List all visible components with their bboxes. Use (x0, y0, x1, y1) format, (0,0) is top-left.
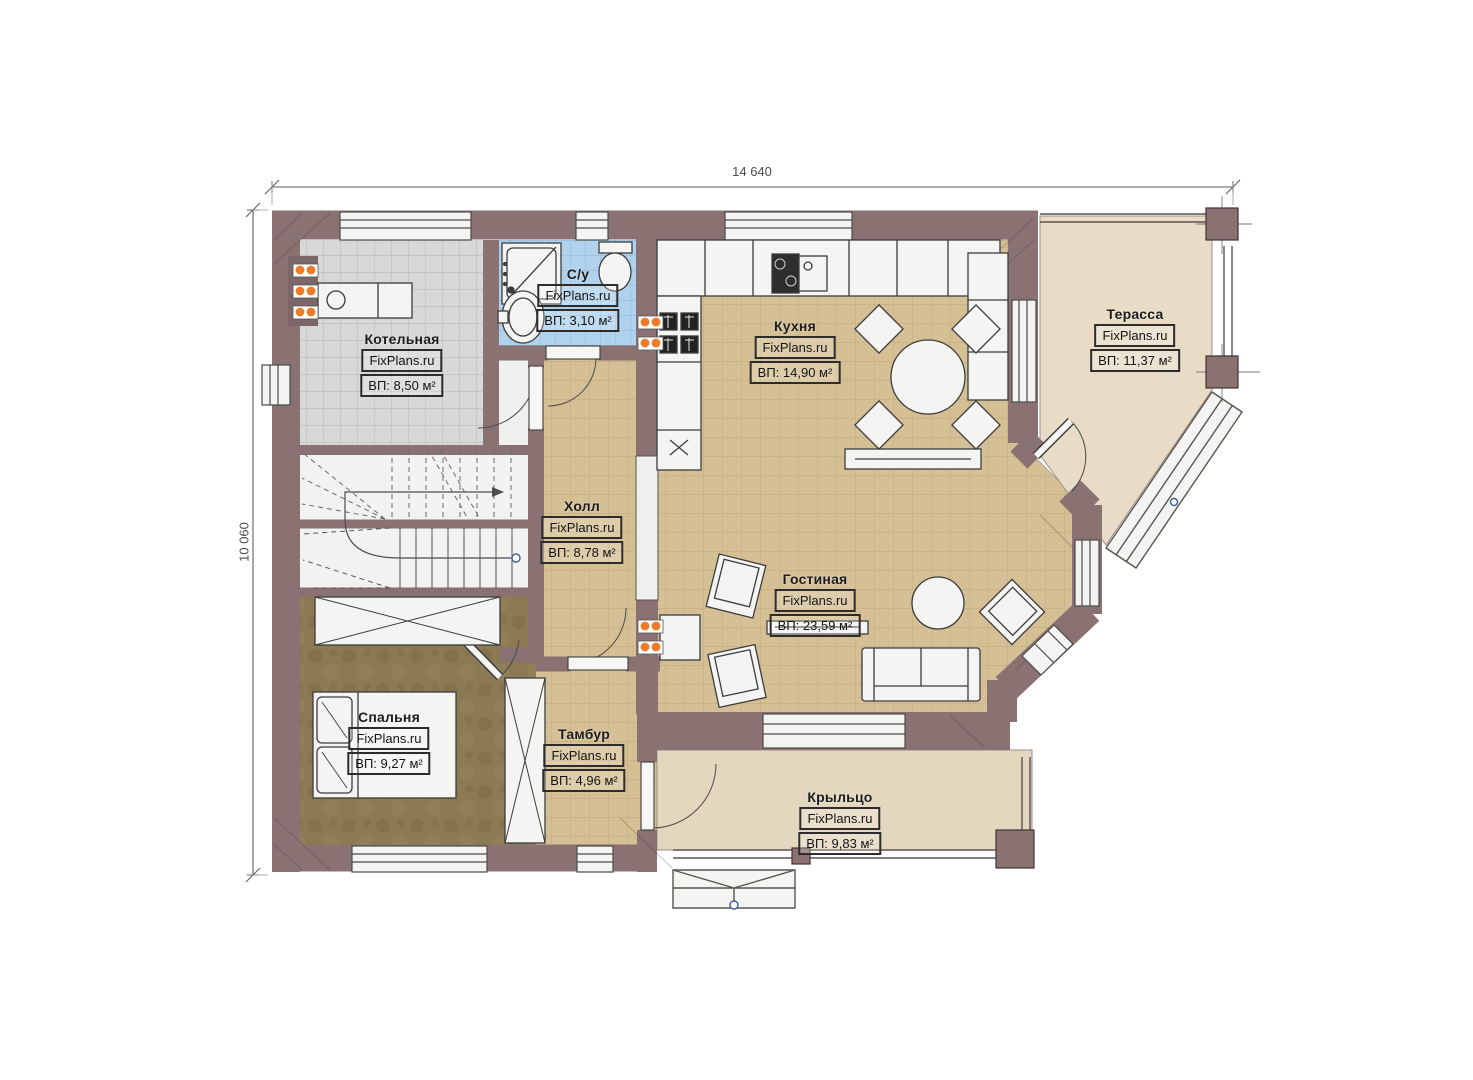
room-name: Крыльцо (798, 789, 881, 805)
room-brand: FixPlans.ru (348, 727, 429, 750)
kitchen-counter-left (657, 296, 701, 470)
room-name: Спальня (347, 709, 430, 725)
room-name: Тамбур (542, 726, 625, 742)
window-tambour-bottom (577, 846, 613, 872)
room-label-tambour: Тамбур FixPlans.ru ВП: 4,96 м² (542, 726, 625, 792)
window-bay-right (1075, 540, 1099, 606)
understairs-storage (315, 597, 500, 645)
room-label-kitchen: Кухня FixPlans.ru ВП: 14,90 м² (750, 318, 841, 384)
terrace-pillar (1206, 356, 1238, 388)
room-brand: FixPlans.ru (774, 589, 855, 612)
room-brand: FixPlans.ru (799, 807, 880, 830)
room-area: ВП: 9,83 м² (798, 832, 881, 855)
radiator-icon (293, 264, 318, 319)
room-area: ВП: 4,96 м² (542, 769, 625, 792)
room-brand: FixPlans.ru (1094, 324, 1175, 347)
room-brand: FixPlans.ru (361, 349, 442, 372)
room-label-living: Гостиная FixPlans.ru ВП: 23,59 м² (770, 571, 861, 637)
floor-plan-drawing (0, 0, 1473, 1080)
room-label-boiler: Котельная FixPlans.ru ВП: 8,50 м² (360, 331, 443, 397)
window-boiler-left (262, 365, 290, 405)
window-kitchen-right (1012, 300, 1036, 402)
room-area: ВП: 23,59 м² (770, 614, 861, 637)
floor-plan-page: 14 640 10 060 Котельная FixPlans.ru ВП: … (0, 0, 1473, 1080)
room-label-porch: Крыльцо FixPlans.ru ВП: 9,83 м² (798, 789, 881, 855)
coffee-table (912, 577, 964, 629)
sofa (862, 648, 980, 701)
wardrobe (505, 678, 545, 843)
kitchen-counter-top (657, 240, 1000, 296)
boiler-unit (318, 283, 412, 318)
room-name: Кухня (750, 318, 841, 334)
room-brand: FixPlans.ru (543, 744, 624, 767)
window-bedroom-bottom (352, 846, 487, 872)
room-area: ВП: 8,50 м² (360, 374, 443, 397)
opening-hall-living (636, 456, 658, 600)
room-area: ВП: 14,90 м² (750, 361, 841, 384)
room-area: ВП: 11,37 м² (1090, 349, 1180, 372)
room-area: ВП: 3,10 м² (536, 309, 619, 332)
room-name: С/у (536, 266, 619, 282)
room-label-bedroom: Спальня FixPlans.ru ВП: 9,27 м² (347, 709, 430, 775)
room-area: ВП: 9,27 м² (347, 752, 430, 775)
window-bathroom-top (576, 212, 608, 240)
room-brand: FixPlans.ru (541, 516, 622, 539)
room-name: Котельная (360, 331, 443, 347)
window-boiler-top (340, 212, 471, 240)
room-name: Холл (540, 498, 623, 514)
porch-pillar (996, 830, 1034, 868)
armchair-2 (708, 645, 766, 708)
room-label-hall: Холл FixPlans.ru ВП: 8,78 м² (540, 498, 623, 564)
room-brand: FixPlans.ru (537, 284, 618, 307)
room-label-bathroom: С/у FixPlans.ru ВП: 3,10 м² (536, 266, 619, 332)
room-brand: FixPlans.ru (754, 336, 835, 359)
dimension-width-label: 14 640 (732, 164, 772, 179)
room-name: Терасса (1090, 306, 1180, 322)
sideboard (845, 449, 981, 469)
room-label-terrace: Терасса FixPlans.ru ВП: 11,37 м² (1090, 306, 1180, 372)
window-living-bottom (763, 714, 905, 748)
tv-cabinet (660, 615, 700, 660)
dimension-height-label: 10 060 (237, 522, 252, 562)
window-kitchen-top (725, 212, 852, 240)
terrace-pillar (1206, 208, 1238, 240)
room-name: Гостиная (770, 571, 861, 587)
room-area: ВП: 8,78 м² (540, 541, 623, 564)
